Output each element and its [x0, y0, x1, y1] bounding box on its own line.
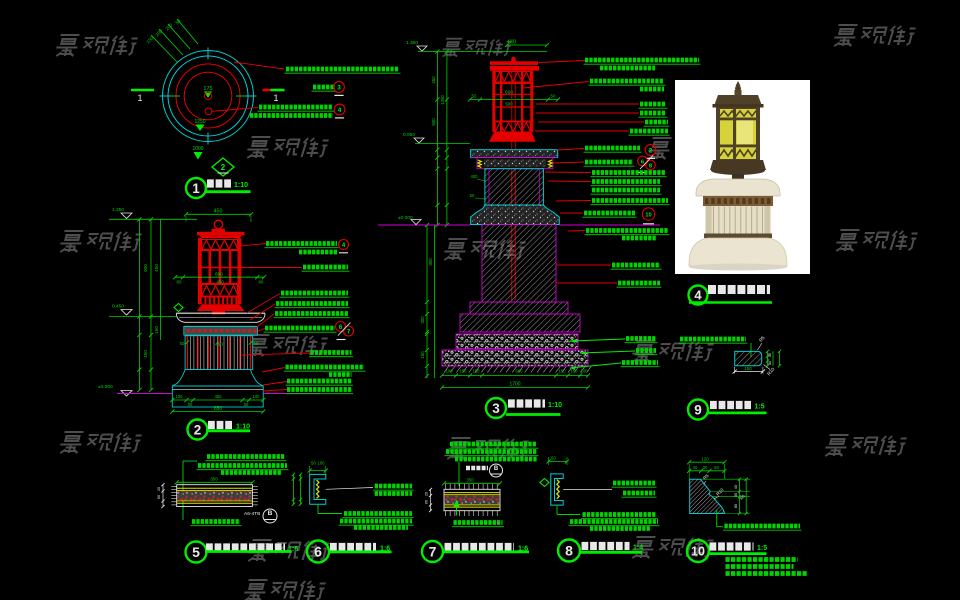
svg-text:400: 400	[471, 174, 479, 179]
svg-text:600: 600	[516, 368, 524, 373]
svg-text:B: B	[494, 466, 499, 472]
svg-text:80: 80	[177, 280, 182, 285]
svg-text:600: 600	[215, 272, 223, 278]
svg-text:1:10: 1:10	[234, 182, 248, 189]
svg-text:150: 150	[420, 351, 425, 359]
svg-text:0.950: 0.950	[403, 132, 415, 138]
svg-text:1000: 1000	[192, 146, 203, 152]
svg-text:30: 30	[768, 353, 772, 357]
svg-text:60: 60	[425, 500, 429, 504]
svg-text:8: 8	[565, 543, 573, 559]
svg-text:30: 30	[768, 361, 772, 365]
svg-text:B: B	[268, 510, 273, 517]
svg-text:1:4: 1:4	[633, 545, 643, 552]
svg-text:50: 50	[551, 94, 556, 99]
svg-text:1350: 1350	[440, 95, 445, 105]
svg-text:3: 3	[492, 401, 500, 416]
svg-text:35: 35	[734, 493, 738, 497]
svg-text:A6-4TB: A6-4TB	[244, 511, 260, 517]
svg-text:1: 1	[273, 93, 278, 103]
svg-text:2: 2	[649, 147, 653, 154]
svg-text:650: 650	[214, 406, 223, 412]
svg-text:900: 900	[143, 264, 148, 272]
svg-text:150: 150	[460, 368, 468, 373]
svg-text:350: 350	[466, 477, 474, 482]
svg-text:4: 4	[694, 288, 702, 303]
svg-text:150: 150	[559, 368, 567, 373]
svg-text:100: 100	[318, 461, 326, 466]
svg-text:900: 900	[428, 258, 433, 266]
svg-text:50: 50	[188, 402, 193, 407]
svg-text:175: 175	[203, 86, 212, 92]
svg-text:1:5: 1:5	[755, 404, 765, 411]
svg-text:1250: 1250	[194, 119, 205, 125]
svg-text:±0.000: ±0.000	[398, 215, 413, 221]
svg-text:100: 100	[176, 394, 184, 399]
svg-text:6: 6	[314, 544, 322, 560]
svg-text:50: 50	[714, 465, 719, 470]
svg-text:1:10: 1:10	[548, 402, 562, 409]
svg-text:50: 50	[254, 341, 259, 346]
svg-text:1.350: 1.350	[112, 207, 124, 213]
svg-text:100: 100	[581, 368, 589, 373]
svg-text:350: 350	[210, 477, 218, 482]
svg-text:2: 2	[221, 163, 226, 172]
svg-text:20: 20	[425, 492, 429, 496]
svg-text:±0.000: ±0.000	[98, 384, 113, 390]
svg-text:50: 50	[472, 94, 477, 99]
svg-text:1:5: 1:5	[757, 545, 767, 552]
svg-text:0.450: 0.450	[112, 304, 124, 310]
svg-text:1: 1	[192, 181, 200, 196]
svg-text:9: 9	[694, 402, 702, 417]
svg-text:10: 10	[645, 212, 651, 218]
svg-text:120: 120	[701, 456, 709, 461]
svg-text:1700: 1700	[509, 382, 520, 388]
svg-text:50: 50	[180, 341, 185, 346]
svg-text:450: 450	[215, 394, 223, 399]
svg-text:4: 4	[338, 107, 342, 114]
svg-text:7: 7	[429, 544, 437, 560]
svg-text:3: 3	[337, 84, 341, 91]
svg-text:10: 10	[691, 545, 705, 559]
svg-text:1.350: 1.350	[406, 40, 418, 46]
svg-text:150: 150	[154, 326, 159, 334]
svg-text:300: 300	[420, 316, 425, 324]
svg-text:85: 85	[734, 504, 738, 508]
svg-text:40: 40	[734, 485, 738, 489]
svg-text:450: 450	[216, 280, 224, 285]
svg-text:40: 40	[693, 465, 698, 470]
svg-text:450: 450	[143, 350, 148, 358]
svg-text:30: 30	[703, 465, 708, 470]
svg-text:50: 50	[470, 193, 475, 198]
svg-text:1: 1	[137, 93, 142, 103]
svg-text:450: 450	[154, 264, 159, 272]
svg-text:500: 500	[431, 118, 436, 126]
svg-text:150: 150	[744, 366, 752, 371]
svg-text:20: 20	[157, 487, 161, 491]
svg-text:100: 100	[253, 394, 261, 399]
svg-text:50: 50	[551, 456, 556, 461]
svg-text:100: 100	[446, 368, 454, 373]
svg-text:2: 2	[194, 422, 202, 437]
svg-text:450: 450	[431, 76, 436, 84]
svg-text:450: 450	[214, 209, 223, 215]
svg-text:50: 50	[244, 402, 249, 407]
svg-text:80: 80	[259, 280, 264, 285]
svg-text:50: 50	[311, 461, 316, 466]
svg-text:60: 60	[157, 495, 161, 499]
svg-text:600: 600	[508, 40, 517, 46]
svg-text:150: 150	[473, 368, 481, 373]
svg-text:450: 450	[215, 341, 223, 347]
svg-text:5: 5	[192, 544, 200, 560]
